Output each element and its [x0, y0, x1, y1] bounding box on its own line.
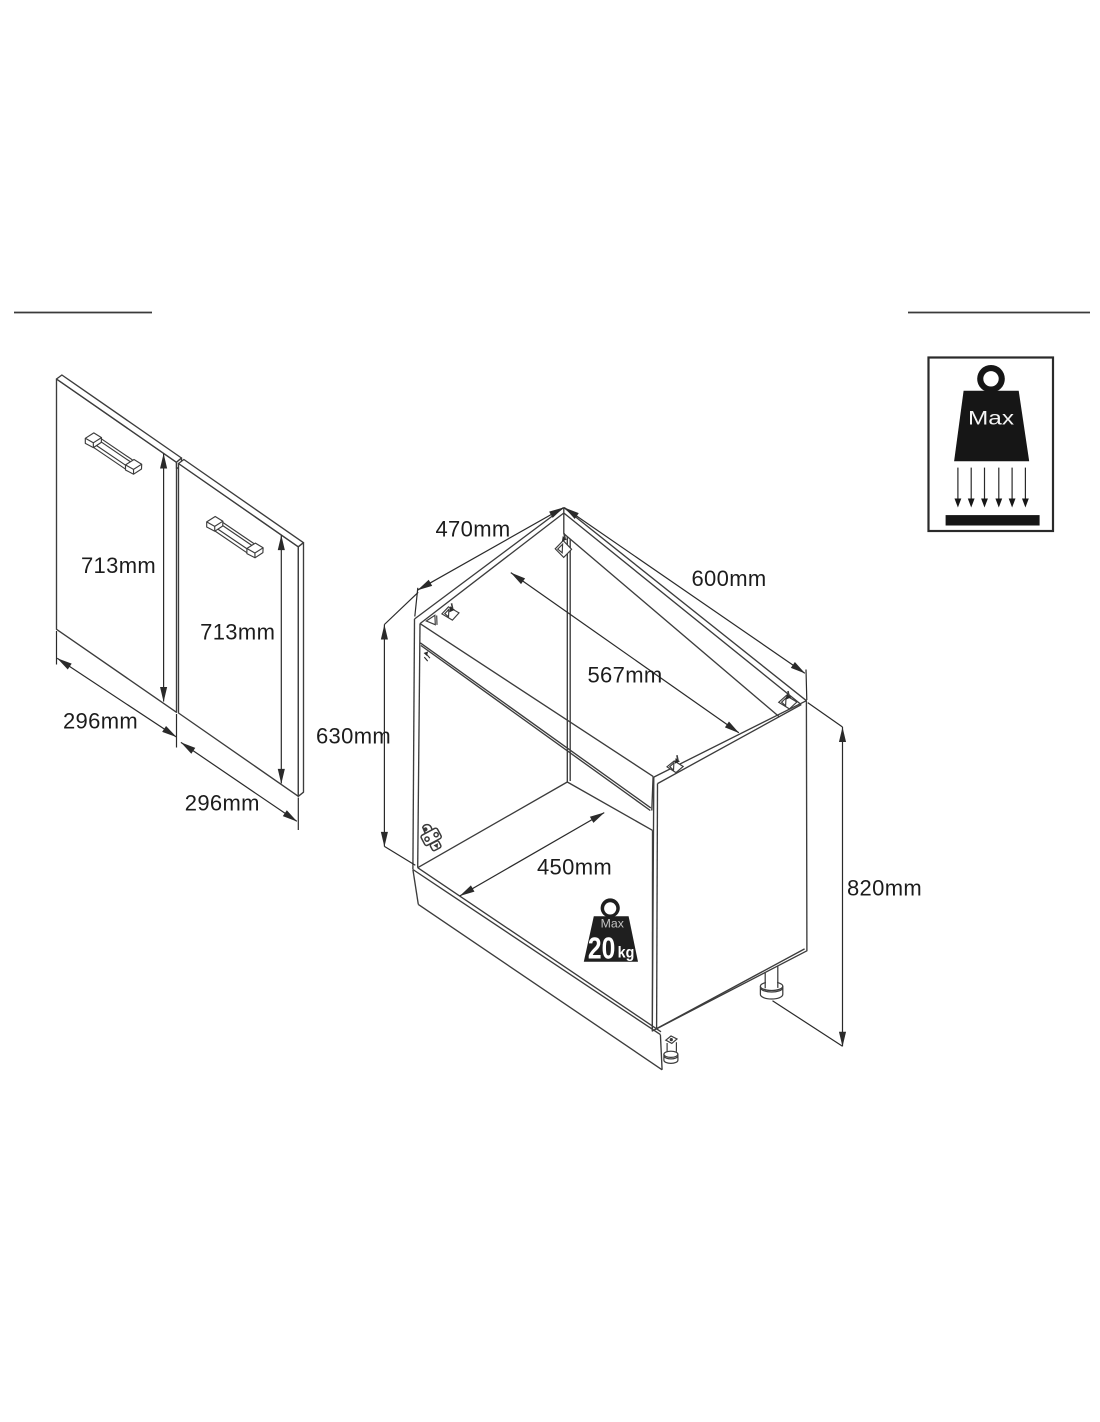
- svg-text:820mm: 820mm: [847, 876, 922, 901]
- svg-text:296mm: 296mm: [63, 709, 138, 734]
- svg-text:600mm: 600mm: [691, 566, 766, 591]
- svg-text:470mm: 470mm: [435, 517, 510, 542]
- svg-text:713mm: 713mm: [200, 619, 275, 644]
- svg-text:20: 20: [588, 931, 615, 965]
- svg-text:296mm: 296mm: [185, 790, 260, 815]
- svg-text:Max: Max: [968, 409, 1015, 430]
- svg-text:567mm: 567mm: [587, 663, 662, 688]
- svg-text:630mm: 630mm: [316, 724, 391, 749]
- svg-text:kg: kg: [618, 945, 635, 962]
- svg-text:450mm: 450mm: [537, 855, 612, 880]
- svg-text:Max: Max: [601, 917, 625, 931]
- svg-text:713mm: 713mm: [81, 553, 156, 578]
